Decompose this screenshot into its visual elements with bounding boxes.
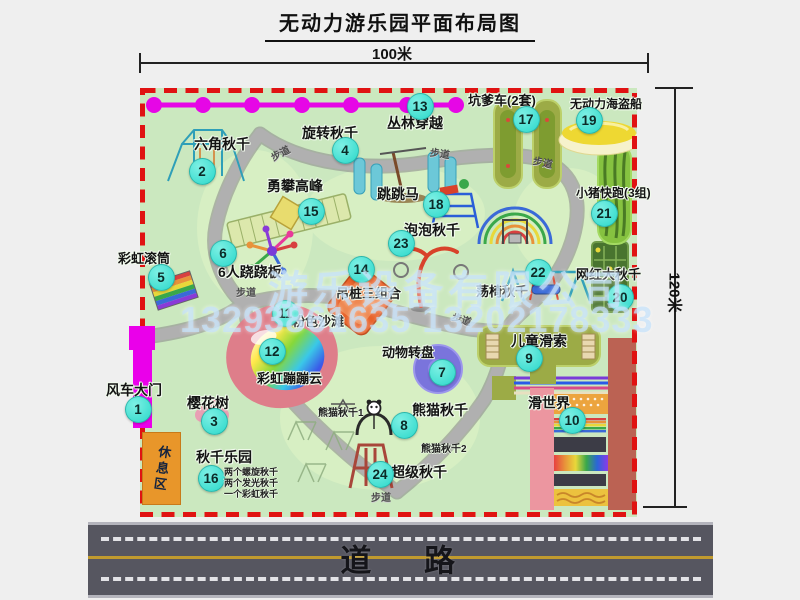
jungle-crossing-zipline-icon [146, 97, 464, 113]
rainbow-roller-icon [150, 271, 198, 310]
pit-cars-icon [494, 100, 561, 188]
park-map-graphics [140, 88, 637, 517]
hanging-piles-combo-icon [325, 264, 397, 338]
pirate-ship-icon [559, 121, 637, 155]
pig-run-track-icon [598, 144, 631, 244]
park-map [140, 88, 637, 517]
page-title: 无动力游乐园平面布局图 [265, 7, 535, 42]
height-dimension-label: 120米 [665, 272, 686, 312]
windmill-gate-bar [133, 348, 152, 428]
dimension-tick [655, 87, 693, 89]
rest-area: 休息区 [142, 432, 181, 505]
windmill-gate-icon [129, 326, 155, 350]
road-label: 道 路 [340, 536, 477, 581]
dimension-tick [647, 53, 649, 73]
playground-plan-page: 无动力游乐园平面布局图 100米 120米 [0, 0, 800, 600]
rest-area-label: 休息区 [149, 443, 174, 493]
road: 道 路 [88, 522, 713, 598]
big-net-swing-icon [592, 242, 628, 312]
dimension-tick [139, 53, 141, 73]
cherry-blossom-tree-icon [195, 398, 229, 429]
animal-turntable-icon [414, 345, 462, 393]
width-dimension-label: 100米 [372, 43, 412, 64]
dimension-tick [643, 506, 687, 508]
